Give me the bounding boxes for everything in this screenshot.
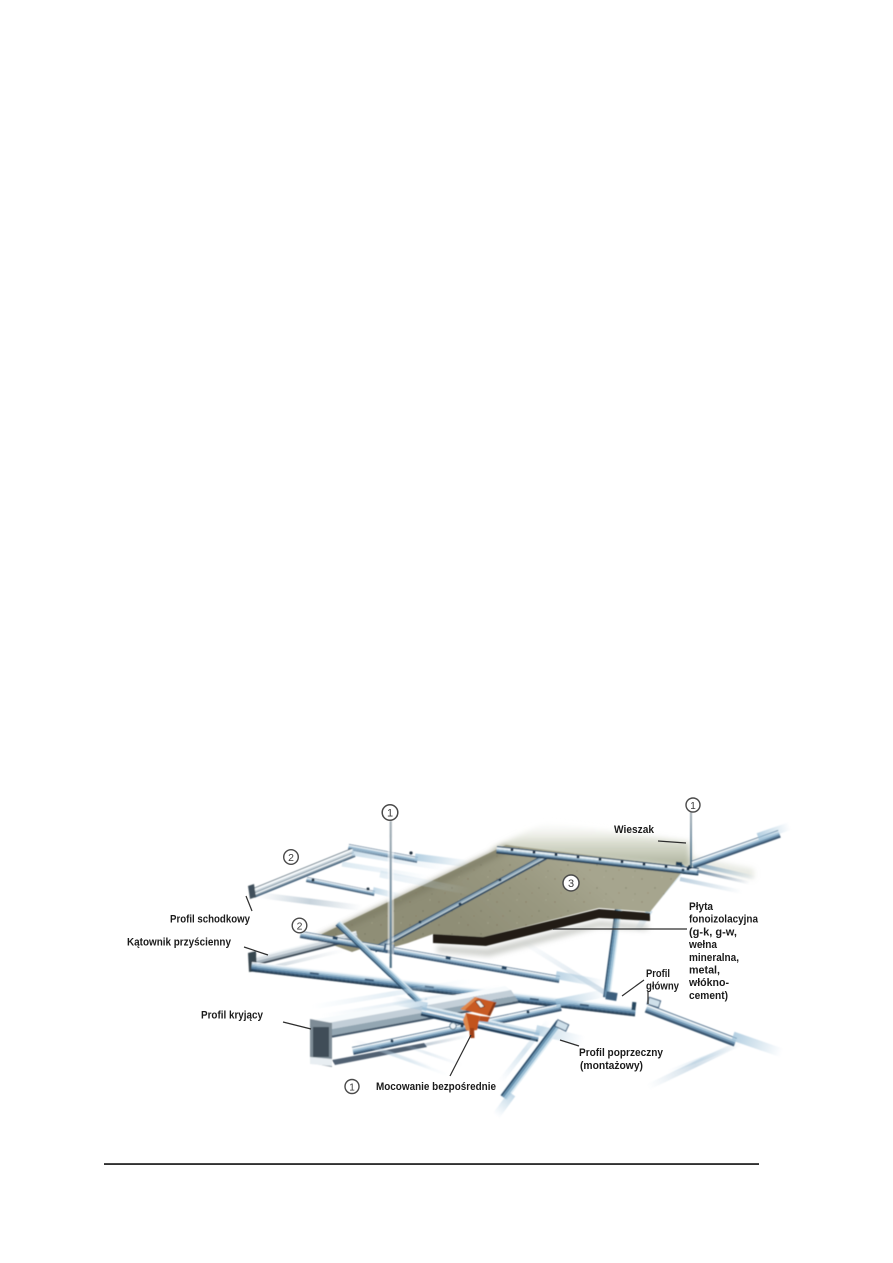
- svg-text:główny: główny: [646, 981, 680, 993]
- svg-text:Profil: Profil: [646, 968, 670, 980]
- svg-text:fonoizolacyjna: fonoizolacyjna: [689, 914, 759, 926]
- svg-text:wełna: wełna: [688, 939, 718, 951]
- svg-text:1: 1: [387, 808, 393, 820]
- svg-text:1: 1: [349, 1082, 355, 1093]
- svg-text:włókno-: włókno-: [688, 977, 729, 989]
- svg-text:(montażowy): (montażowy): [580, 1060, 643, 1072]
- svg-text:1: 1: [690, 801, 696, 812]
- svg-text:mineralna,: mineralna,: [689, 952, 739, 964]
- svg-text:3: 3: [568, 878, 574, 890]
- svg-text:Profil poprzeczny: Profil poprzeczny: [579, 1047, 664, 1059]
- svg-text:Profil schodkowy: Profil schodkowy: [170, 914, 251, 926]
- svg-text:Wieszak: Wieszak: [614, 824, 655, 836]
- svg-text:2: 2: [297, 921, 303, 933]
- svg-text:cement): cement): [689, 990, 728, 1002]
- svg-text:Mocowanie bezpośrednie: Mocowanie bezpośrednie: [376, 1081, 496, 1093]
- svg-text:(g-k, g-w,: (g-k, g-w,: [689, 926, 737, 938]
- svg-text:Płyta: Płyta: [689, 901, 714, 913]
- svg-text:metal,: metal,: [689, 965, 720, 977]
- svg-text:Profil kryjący: Profil kryjący: [201, 1010, 264, 1022]
- svg-text:Kątownik przyścienny: Kątownik przyścienny: [127, 937, 232, 949]
- svg-text:2: 2: [288, 852, 294, 864]
